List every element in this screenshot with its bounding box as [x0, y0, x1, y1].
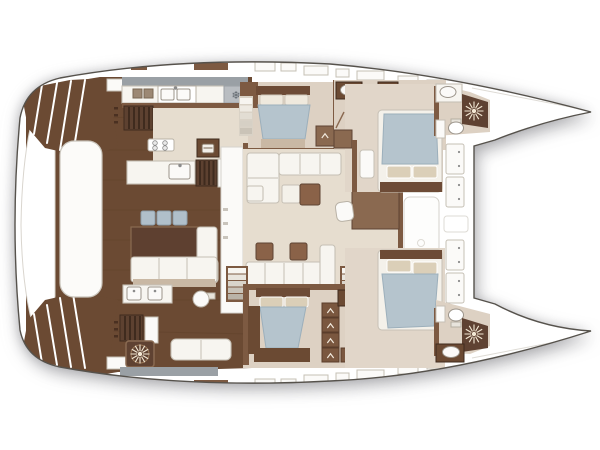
deck-hatch	[446, 240, 464, 270]
deck-hatch	[446, 144, 464, 174]
appliance-icon	[144, 89, 153, 98]
trampoline-lines	[476, 150, 516, 298]
stool	[290, 243, 307, 260]
forward-seat	[404, 197, 439, 253]
shelf	[436, 120, 445, 138]
stool	[157, 211, 171, 225]
island-sink-icon	[169, 164, 190, 179]
washbasin-icon	[440, 87, 456, 98]
aft-bench	[171, 339, 231, 360]
stool	[256, 243, 273, 260]
vanity-twin-sinks	[123, 285, 172, 303]
double-sink-icon	[158, 86, 196, 103]
door-panel	[145, 317, 158, 343]
port-forward-cabin	[334, 84, 443, 192]
dining-table	[131, 227, 198, 258]
hull-window-band	[120, 367, 218, 376]
hinge-dots	[114, 321, 118, 338]
toilet-icon	[449, 119, 464, 134]
wardrobe	[334, 130, 352, 148]
nav-chair	[335, 201, 354, 222]
starboard-forward-cabin	[345, 248, 445, 368]
companionway-stairs	[196, 160, 217, 186]
deck-hatch	[446, 177, 464, 207]
nav-desk	[352, 191, 399, 229]
oven-icon	[197, 139, 219, 157]
toilet-icon	[449, 309, 464, 327]
hinge-dots	[114, 107, 118, 124]
cabin-steps	[239, 96, 253, 136]
settee	[131, 257, 217, 285]
bed-starboard-forward	[378, 250, 442, 330]
hull-stairs	[120, 315, 143, 341]
ottoman	[247, 186, 263, 201]
shower-stall	[126, 341, 154, 367]
bed-port-mid	[256, 86, 310, 148]
deck-hatch	[446, 273, 464, 303]
coffee-table-wood	[300, 184, 320, 205]
cooktop-icon	[148, 139, 174, 151]
port-mid-cabin	[239, 80, 345, 148]
floorplan-canvas: ❄	[0, 0, 600, 450]
nightstand	[316, 126, 334, 146]
galley-stairs	[124, 106, 153, 130]
appliance-icon	[133, 89, 142, 98]
bed-port-forward	[378, 110, 442, 192]
stool	[173, 211, 187, 225]
shelf	[436, 306, 445, 322]
aft-sunpad	[60, 141, 102, 297]
washbasin-icon	[443, 347, 460, 358]
yacht-floorplan: ❄	[0, 0, 600, 450]
stool	[141, 211, 155, 225]
locker-door	[360, 150, 374, 178]
coffee-table-white	[282, 185, 300, 203]
